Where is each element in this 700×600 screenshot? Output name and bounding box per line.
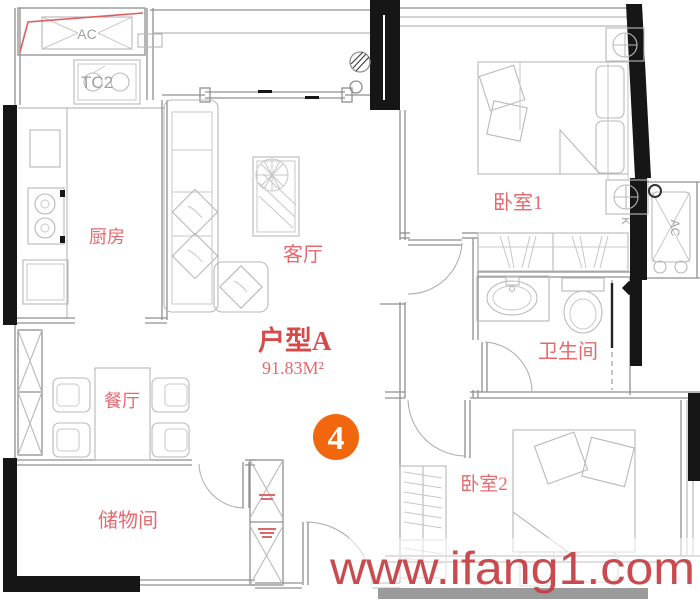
bed1-cushion xyxy=(487,101,527,141)
unit-area-label: 91.83M² xyxy=(262,358,324,378)
badge-number: 4 xyxy=(328,420,345,457)
sofa xyxy=(164,100,268,312)
sofa-pillow xyxy=(220,266,262,308)
bathroom-label: 卫生间 xyxy=(538,340,598,363)
floorplan-canvas: 厨房 客厅 餐厅 储物间 卧室1 卫生间 卧室2 户型A 91.83M² 4 A… xyxy=(0,0,700,600)
wardrobe-bedroom1 xyxy=(478,233,628,271)
plant xyxy=(256,159,288,191)
watermark: www.ifang1.com xyxy=(316,538,700,599)
sofa-chaise xyxy=(214,262,268,312)
kitchen-furniture xyxy=(23,60,140,304)
bathroom-sink xyxy=(477,276,549,321)
dining-chair xyxy=(53,423,90,457)
bed1-blanket-fold xyxy=(560,130,600,174)
kitchen-label: 厨房 xyxy=(89,227,125,247)
sofa-pillow xyxy=(172,189,217,234)
doors xyxy=(199,240,532,585)
bedroom2-label: 卧室2 xyxy=(460,473,508,495)
bedroom1-door xyxy=(408,240,462,294)
sink-tc2-label: TC2 xyxy=(81,73,113,92)
dining-chair xyxy=(53,378,90,412)
bed1-pillow xyxy=(596,121,624,173)
wall-bottom-left xyxy=(3,576,140,592)
wall-left-lower xyxy=(3,458,17,592)
bed1-pillow xyxy=(596,66,624,118)
bedroom1-label: 卧室1 xyxy=(493,191,543,214)
kitchen-cabinet xyxy=(23,260,68,304)
bed2-cushion xyxy=(582,437,634,486)
living-furniture xyxy=(164,100,299,312)
dining-table xyxy=(95,368,150,460)
unit-number-badge: 4 xyxy=(313,414,359,460)
bed2 xyxy=(513,430,635,552)
unit-info: 户型A 91.83M² xyxy=(258,325,332,378)
shaft-entry xyxy=(250,460,283,585)
ac-right-label: AC xyxy=(668,220,682,237)
balcony-sliding-door xyxy=(200,88,352,102)
wall-right-mid xyxy=(630,178,647,280)
bed1-cushion xyxy=(479,65,524,110)
dining-chair xyxy=(152,378,189,412)
wall-right-bedroom2 xyxy=(688,393,700,481)
living-label: 客厅 xyxy=(283,243,323,266)
column-symbol xyxy=(350,52,370,93)
bed2-cushion xyxy=(534,432,587,484)
wall-right-lower xyxy=(630,280,642,366)
bedroom2-door xyxy=(408,400,470,458)
stove xyxy=(28,188,65,244)
toilet xyxy=(562,278,604,333)
shaft-dining xyxy=(18,330,42,455)
watermark-text: www.ifang1.com xyxy=(329,542,695,594)
hanger-lines xyxy=(500,236,608,268)
unit-type-label: 户型A xyxy=(258,325,332,356)
fridge xyxy=(30,130,60,167)
dining-chair xyxy=(152,423,189,457)
dining-label: 餐厅 xyxy=(104,391,140,411)
bedroom1-furniture xyxy=(478,28,648,214)
storage-label: 储物间 xyxy=(98,509,158,532)
sofa-pillow xyxy=(172,233,217,278)
wall-left-upper xyxy=(3,105,17,325)
ac-top-label: AC xyxy=(77,26,96,42)
bathroom-door xyxy=(482,342,532,392)
dining-furniture xyxy=(53,368,189,460)
k-label: K xyxy=(619,217,631,225)
storage-door xyxy=(199,462,249,508)
wall-bedroom1-slanted xyxy=(626,4,651,178)
bathroom-fixtures xyxy=(477,276,612,390)
floorplan-drawing: 厨房 客厅 餐厅 储物间 卧室1 卫生间 卧室2 户型A 91.83M² 4 A… xyxy=(0,0,700,600)
